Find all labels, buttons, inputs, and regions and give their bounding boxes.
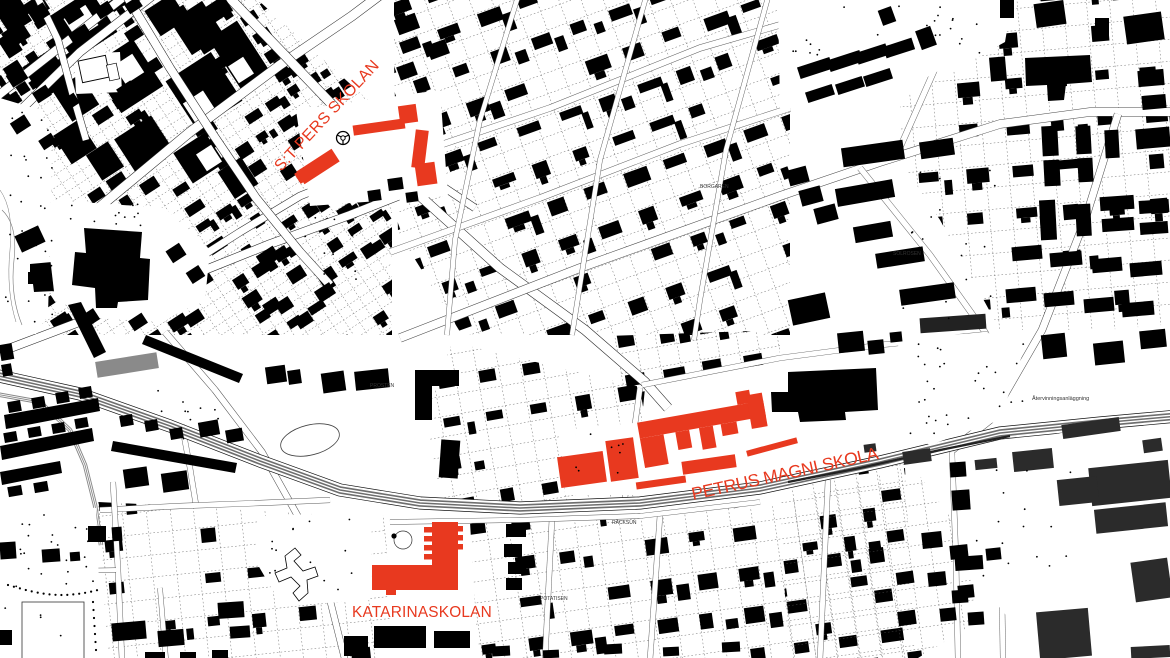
svg-text:PROSTEN: PROSTEN [370,383,395,389]
svg-text:POTATISEN: POTATISEN [540,596,568,602]
svg-text:BORGAREN: BORGAREN [700,184,729,190]
svg-text:RÄCKSUN: RÄCKSUN [612,519,637,526]
svg-text:SOLROSEN: SOLROSEN [893,251,921,257]
svg-text:KATARINASKOLAN: KATARINASKOLAN [352,604,492,621]
svg-text:Återvinningsanläggning: Återvinningsanläggning [1032,395,1089,402]
